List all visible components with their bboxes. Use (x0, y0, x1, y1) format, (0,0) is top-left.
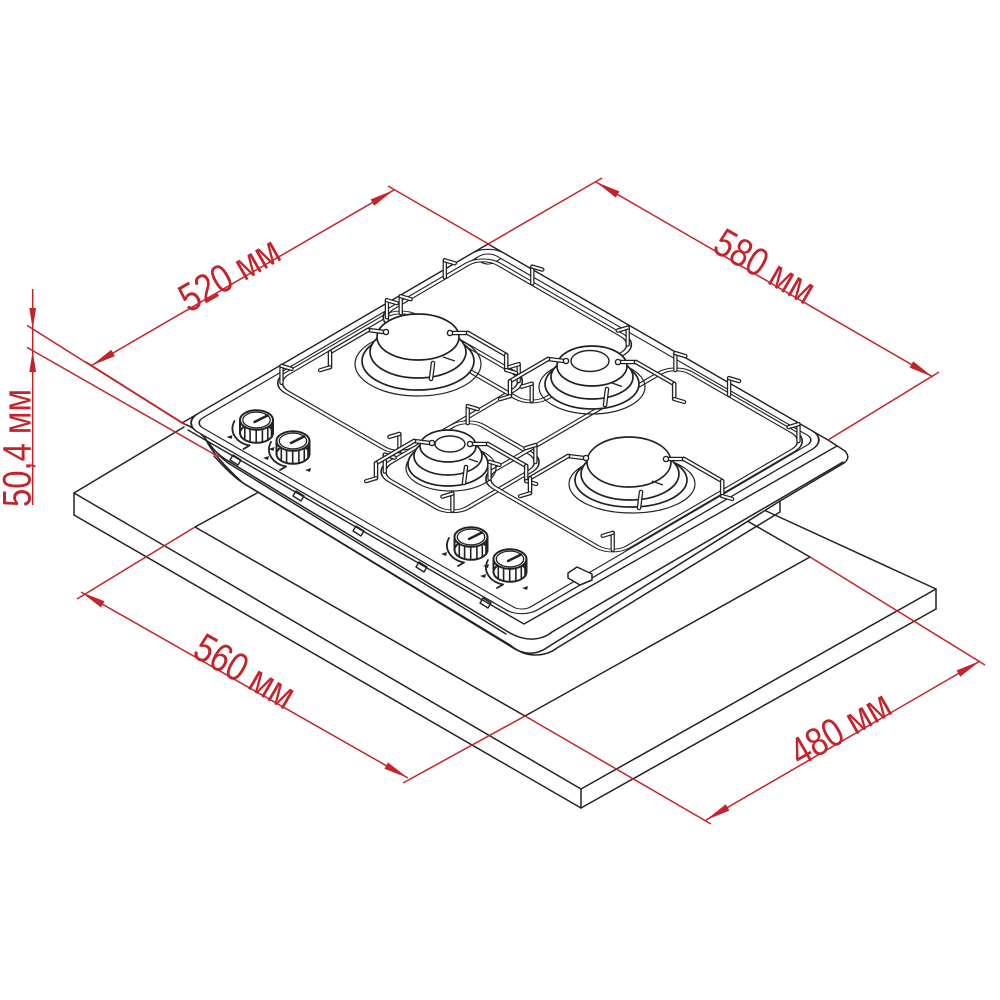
svg-text:480 мм: 480 мм (782, 682, 899, 775)
svg-text:520 мм: 520 мм (171, 228, 288, 321)
svg-text:560 мм: 560 мм (186, 625, 303, 718)
svg-text:50,4 мм: 50,4 мм (0, 389, 39, 507)
svg-text:580 мм: 580 мм (706, 220, 823, 313)
